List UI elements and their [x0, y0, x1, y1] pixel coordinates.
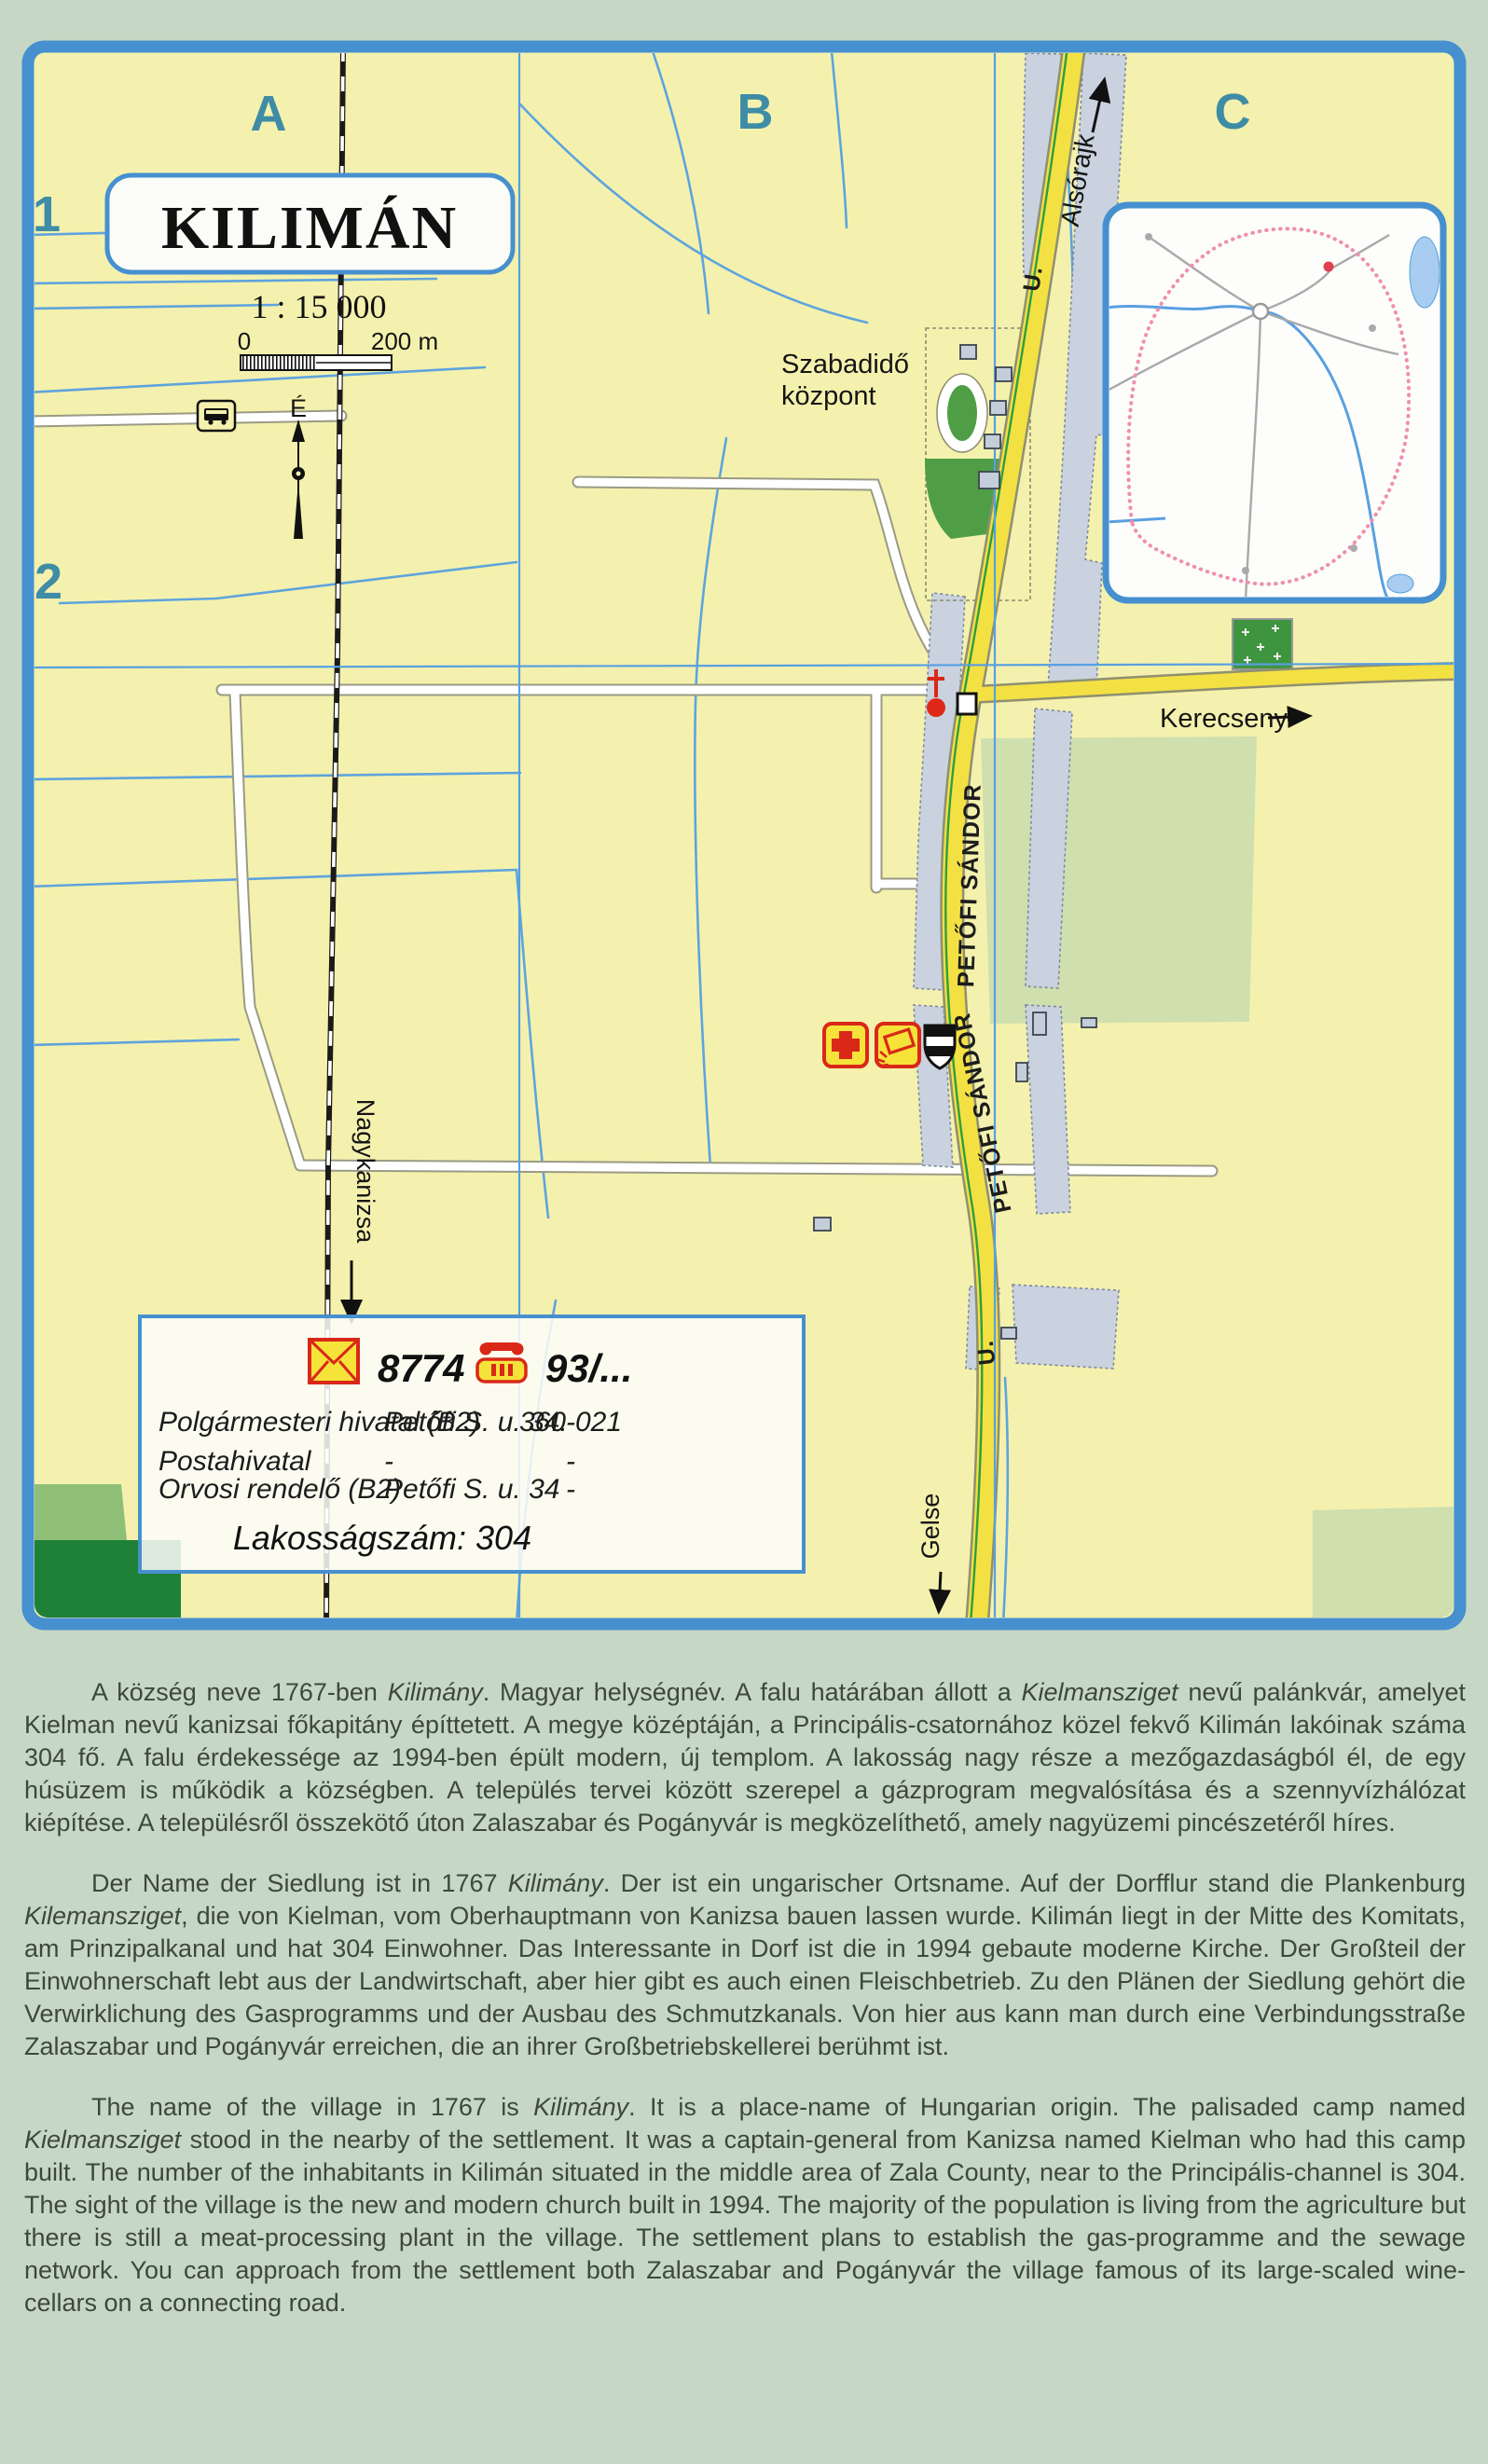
bus-stop-icon: [198, 401, 235, 431]
shield-icon: [925, 1026, 955, 1068]
leisure-centre-label-line1: Szabadidő: [781, 350, 909, 379]
grid-col-b: B: [737, 84, 774, 140]
north-label: É: [290, 394, 307, 422]
description-text: A község neve 1767-ben Kilimány. Magyar …: [24, 1676, 1466, 2347]
description-paragraph-de: Der Name der Siedlung ist in 1767 Kilimá…: [24, 1867, 1466, 2063]
postal-code: 8774: [378, 1346, 464, 1390]
inset-lake: [1410, 237, 1440, 308]
scale-distance: 200 m: [371, 327, 438, 355]
grid-col-c: C: [1215, 84, 1251, 140]
destination-nagykanizsa: Nagykanizsa: [351, 1099, 379, 1245]
grid-col-a: A: [251, 86, 287, 142]
posthorn-icon: [876, 1024, 919, 1067]
phone-prefix: 93/...: [545, 1346, 632, 1390]
street-suffix-bottom: U.: [972, 1339, 1001, 1367]
legend-row-name: Orvosi rendelő (B2): [158, 1474, 401, 1505]
gelse-arrow-icon: [939, 1572, 941, 1609]
legend-row-phone: -: [566, 1474, 575, 1505]
town-map: PETŐFI SÁNDOR PETŐFI SÁNDOR U. U. Alsóra…: [0, 0, 1488, 1655]
inset-map: [1106, 205, 1443, 600]
scale-bar: [241, 355, 392, 370]
legend-box: 8774 93/... Polgármesteri hivatal (B2) P…: [140, 1316, 804, 1572]
scale-text: 1 : 15 000: [251, 288, 386, 325]
inset-village-marker: [1324, 262, 1334, 272]
scale-zero: 0: [238, 327, 251, 355]
medical-icon: [824, 1024, 867, 1067]
legend-row-phone: 360-021: [519, 1407, 622, 1438]
description-paragraph-hu: A község neve 1767-ben Kilimány. Magyar …: [24, 1676, 1466, 1839]
street-suffix-top: U.: [1018, 265, 1047, 294]
leisure-centre-label-line2: központ: [781, 381, 876, 411]
legend-row-phone: -: [566, 1446, 575, 1477]
kerecseny-arrow-icon: [1268, 716, 1307, 718]
destination-gelse: Gelse: [916, 1494, 944, 1560]
grid-row-1: 1: [33, 186, 61, 242]
map-title: KILIMÁN: [161, 194, 458, 262]
telephone-icon: [477, 1342, 526, 1382]
map-title-box: KILIMÁN: [107, 175, 513, 272]
legend-row-name: Postahivatal: [158, 1446, 312, 1477]
grid-row-2: 2: [34, 554, 62, 610]
sports-field: [937, 374, 987, 452]
population-label: Lakosságszám: 304: [233, 1519, 531, 1557]
legend-row-address: Petőfi S. u. 34: [384, 1474, 559, 1505]
description-paragraph-en: The name of the village in 1767 is Kilim…: [24, 2091, 1466, 2319]
envelope-icon: [310, 1340, 358, 1383]
cemetery: [1233, 619, 1292, 669]
legend-row-address: -: [384, 1446, 393, 1477]
scanned-map-page: PETŐFI SÁNDOR PETŐFI SÁNDOR U. U. Alsóra…: [0, 0, 1488, 2464]
